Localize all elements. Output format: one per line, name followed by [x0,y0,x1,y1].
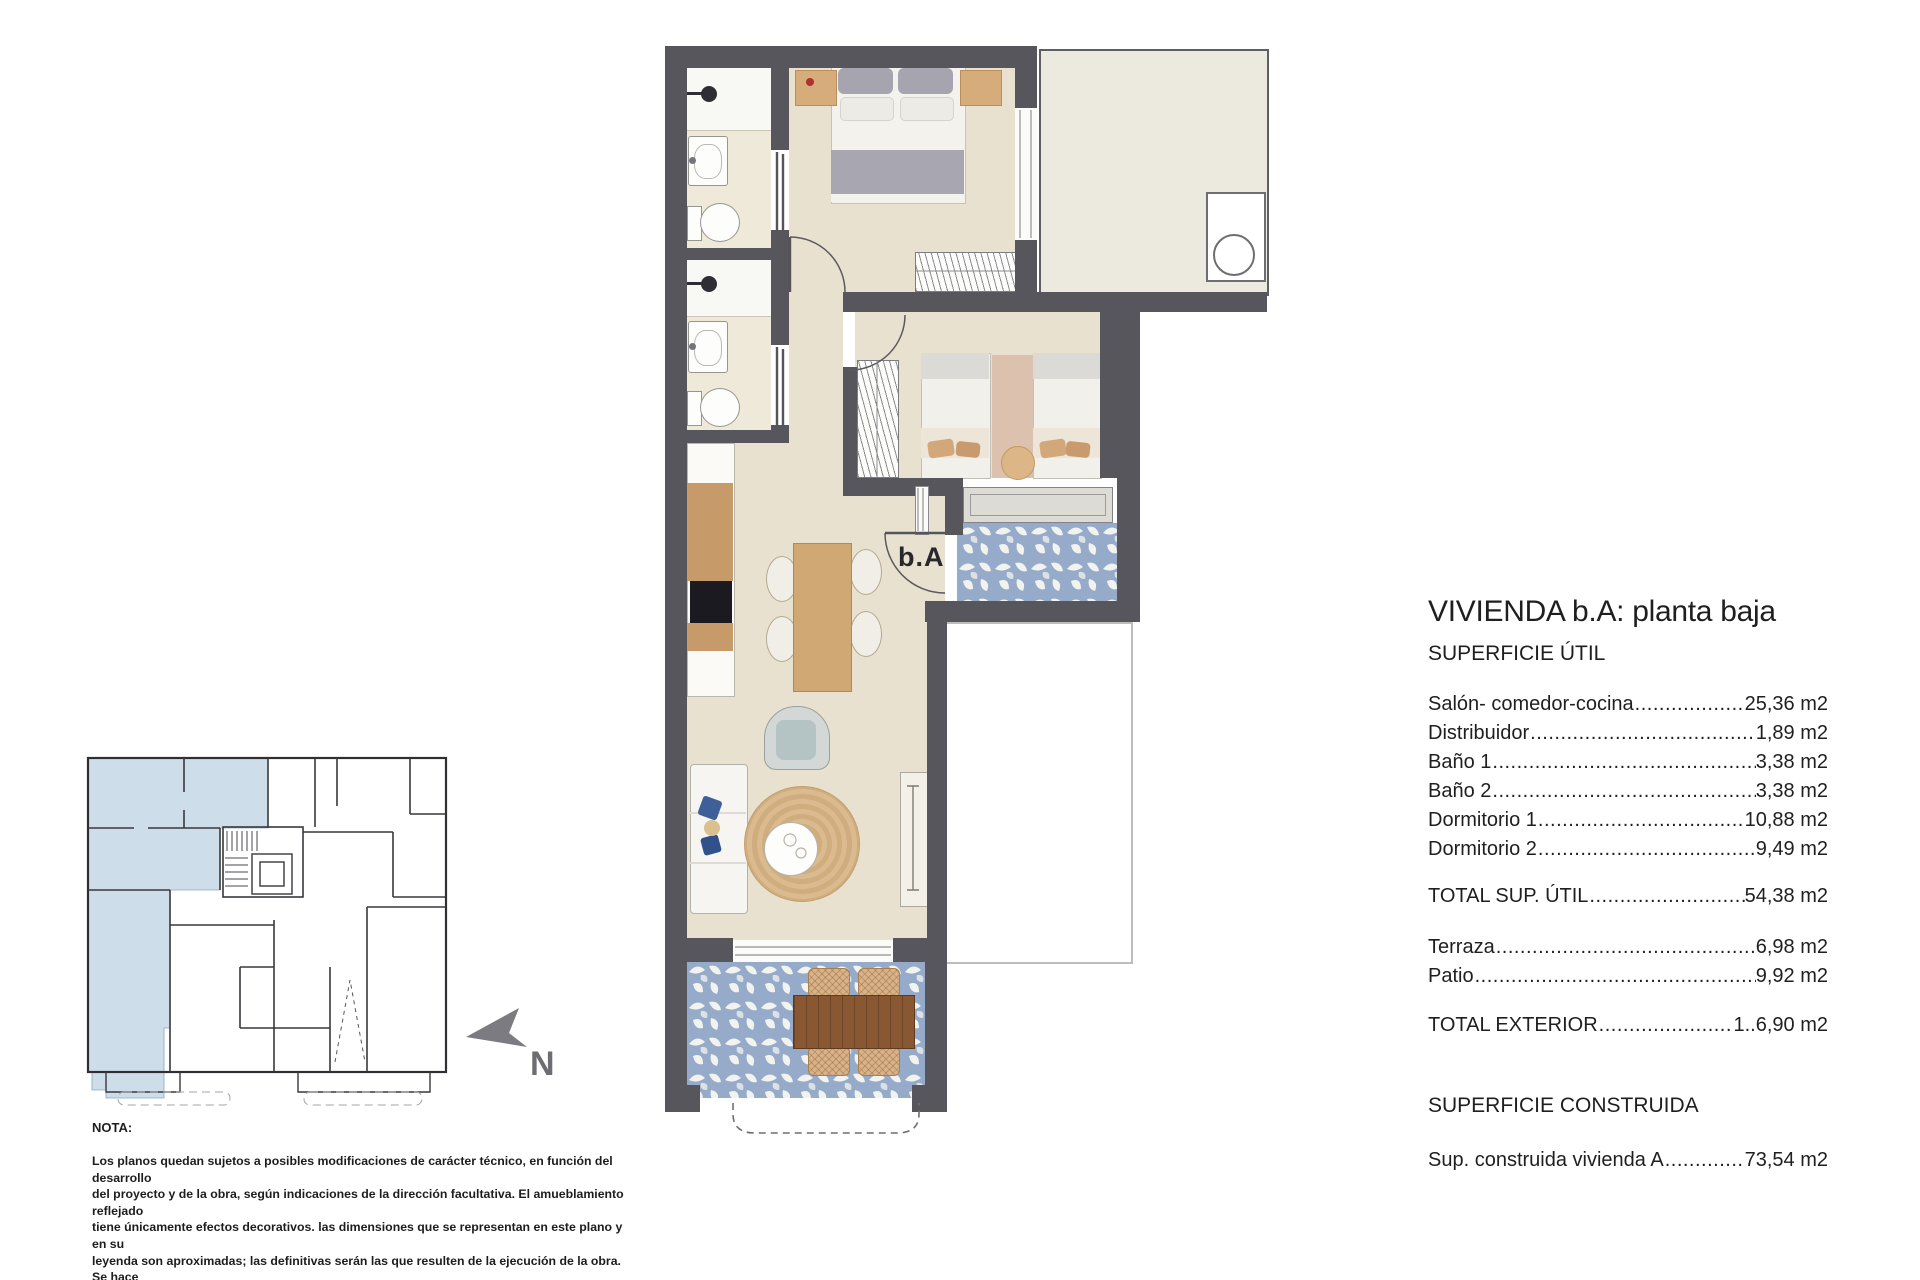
terrace-chair [858,968,900,998]
page-title: VIVIENDA b.A: planta baja [1428,594,1828,630]
key-plan [84,750,456,1112]
exterior-rows: Terraza ................................… [1428,933,1828,991]
area-row: Patio ..................................… [1428,962,1828,991]
wall [771,230,789,260]
patio-tiled-floor [957,523,1117,601]
entry-sidelight-window [915,486,929,535]
toilet-bowl [700,388,740,427]
sofa [690,764,748,914]
wall [665,1085,700,1112]
dot-leader: ........................................… [1495,933,1756,962]
wall [771,68,789,150]
bedroom2-window-band [963,487,1113,523]
cushion [1065,441,1090,458]
armchair-seat [776,720,816,760]
kitchen-cabinet-wood [687,483,733,581]
terrace-chair [808,1046,850,1076]
note-heading: NOTA: [92,1120,637,1135]
wardrobe-bedroom2 [857,360,899,478]
area-row: Salón- comedor-cocina ..................… [1428,690,1828,719]
dot-leader: ........................................… [1491,777,1755,806]
cooktop [690,581,732,623]
area-row: Dormitorio 2 ...........................… [1428,835,1828,864]
single-bed-a-fold [921,353,989,379]
dot-leader: ........................................… [1529,719,1756,748]
wall [843,367,857,478]
area-row: Dormitorio 1 ...........................… [1428,806,1828,835]
north-arrow: N [460,995,570,1090]
note-body: Los planos quedan sujetos a posibles mod… [92,1153,637,1280]
bed1-foot-sheet [831,194,964,202]
dot-leader: ........................................… [1664,1146,1745,1175]
wall [1015,46,1037,108]
wall [912,1085,947,1112]
kitchen-cabinet-wood-2 [687,623,733,651]
sliding-door [777,347,783,427]
nightstand-decor [806,78,814,86]
north-arrow-icon [466,1008,527,1047]
dining-table [793,543,852,692]
note-line: leyenda son aproximadas; las definitivas… [92,1253,637,1280]
window-band-inner-line [970,494,1106,516]
dot-leader: ........................................… [1598,1011,1734,1040]
sliding-door [777,152,783,232]
wall [843,292,1267,312]
wall [927,601,947,942]
area-rows: Salón- comedor-cocina ..................… [1428,690,1828,864]
nightstand [960,70,1002,106]
north-label: N [530,1045,555,1083]
sink-tap [689,343,696,350]
dot-leader: ........................................… [1537,835,1756,864]
note-line: Los planos quedan sujetos a posibles mod… [92,1153,637,1186]
area-legend: VIVIENDA b.A: planta baja SUPERFICIE ÚTI… [1428,594,1828,1175]
sink-tap [689,157,696,164]
section-superficie-construida: SUPERFICIE CONSTRUIDA [1428,1094,1828,1118]
note-line: tiene únicamente efectos decorativos. la… [92,1219,637,1252]
dining-chair [850,611,882,657]
nightstand [795,70,837,106]
dot-leader: ........................................… [1634,690,1745,719]
shower-1-tray [687,68,771,131]
bed1-pillow-white [840,97,894,121]
terrace-dashed-boundary [733,1103,919,1133]
bedroom1-window [1015,108,1037,240]
wall [893,938,947,962]
unit-label: b.A [898,542,945,573]
cushion [927,438,955,458]
area-row: Terraza ................................… [1428,933,1828,962]
toilet-bowl [700,203,740,242]
wall [945,496,963,535]
dot-leader: ........................................… [1537,806,1745,835]
wall [925,962,947,1105]
key-plan-ramp-dashes [335,980,365,1062]
wall [665,46,1037,68]
exterior-void-area [943,622,1133,964]
sofa-cushion-line [690,862,746,864]
bed1-pillow [898,68,953,94]
single-bed-b-fold [1033,353,1100,379]
dot-leader: ........................................… [1491,748,1755,777]
terrace-chair [858,1046,900,1076]
dot-leader: ........................................… [1588,882,1744,911]
sofa-pillow-round [704,820,720,836]
dot-leader: ........................................… [1474,962,1756,991]
construida-row: Sup. construida vivienda A .............… [1428,1146,1828,1175]
note-line: del proyecto y de la obra, según indicac… [92,1186,637,1219]
wall [665,962,687,1105]
patio-fixture-basin [1213,234,1255,276]
shower-head-icon [701,276,717,292]
total-exterior-row: TOTAL EXTERIOR .........................… [1428,1011,1828,1040]
wall [771,260,789,345]
wall [665,46,687,942]
wardrobe-bedroom1 [915,252,1017,292]
total-util-row: TOTAL SUP. ÚTIL ........................… [1428,882,1828,911]
wall [771,425,789,443]
area-row: Baño 2 .................................… [1428,777,1828,806]
area-row: Distribuidor ...........................… [1428,719,1828,748]
section-superficie-util: SUPERFICIE ÚTIL [1428,642,1828,666]
note-block: NOTA: Los planos quedan sujetos a posibl… [92,1120,637,1280]
shower-2-tray [687,260,771,317]
terrace-chair [808,968,850,998]
bed1-pillow-white [900,97,954,121]
sink-basin [694,144,722,179]
key-plan-highlight [88,758,268,1098]
shower-head-icon [701,86,717,102]
cushion [955,441,980,458]
wall [1015,240,1037,292]
wall [843,478,963,496]
wall [665,938,733,962]
wall [1117,292,1140,622]
sink-basin [694,330,722,366]
bed1-pillow [838,68,893,94]
terrace-window-band [733,940,893,962]
area-row: Baño 1 .................................… [1428,748,1828,777]
floor-plan-sheet: b.A [0,0,1920,1280]
console-table [900,772,928,907]
wall [925,601,1140,622]
dining-chair [850,549,882,595]
coffee-table [764,822,818,876]
cushion [1039,438,1067,458]
terrace-table [793,995,915,1049]
key-plan-elevator [252,854,292,894]
round-rug-small [1001,446,1035,480]
distributor-floor [789,292,843,443]
